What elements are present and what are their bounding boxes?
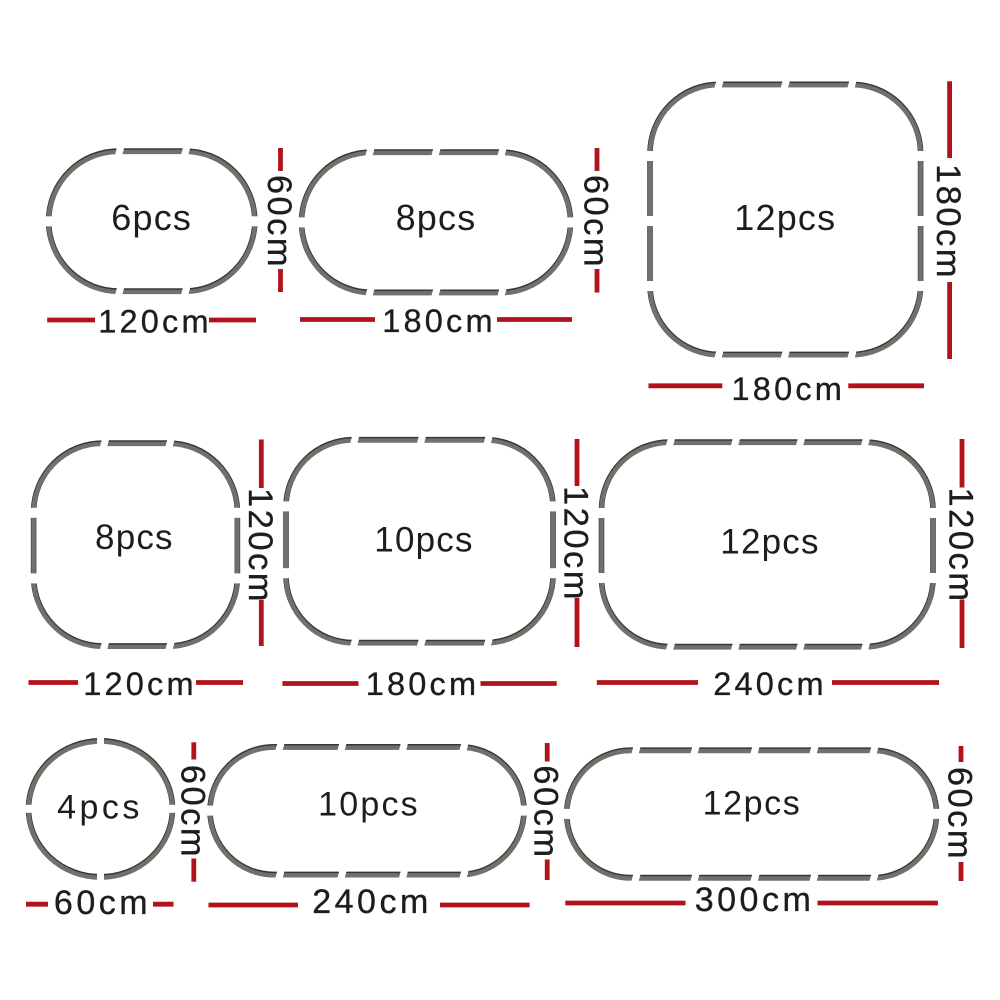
svg-text:8pcs: 8pcs [396, 197, 477, 238]
svg-text:60cm: 60cm [260, 175, 298, 269]
svg-text:60cm: 60cm [577, 175, 615, 269]
svg-text:300cm: 300cm [695, 881, 815, 919]
svg-text:12pcs: 12pcs [703, 785, 802, 823]
svg-text:180cm: 180cm [929, 164, 967, 280]
svg-text:8pcs: 8pcs [95, 518, 174, 557]
svg-text:6pcs: 6pcs [111, 197, 192, 238]
svg-text:120cm: 120cm [241, 488, 279, 604]
svg-text:12pcs: 12pcs [734, 197, 836, 238]
svg-text:120cm: 120cm [98, 304, 212, 340]
svg-text:60cm: 60cm [54, 884, 151, 922]
svg-text:120cm: 120cm [557, 486, 595, 602]
svg-text:60cm: 60cm [941, 767, 979, 861]
svg-text:10pcs: 10pcs [318, 786, 420, 824]
svg-text:12pcs: 12pcs [720, 523, 819, 562]
svg-text:240cm: 240cm [713, 666, 827, 702]
svg-text:60cm: 60cm [527, 765, 565, 859]
svg-text:4pcs: 4pcs [57, 789, 143, 827]
svg-text:240cm: 240cm [312, 883, 432, 921]
svg-text:180cm: 180cm [732, 371, 846, 407]
svg-text:10pcs: 10pcs [374, 521, 473, 560]
svg-text:120cm: 120cm [942, 487, 980, 603]
svg-text:180cm: 180cm [382, 303, 496, 339]
svg-text:180cm: 180cm [366, 666, 480, 702]
svg-text:120cm: 120cm [83, 666, 197, 702]
